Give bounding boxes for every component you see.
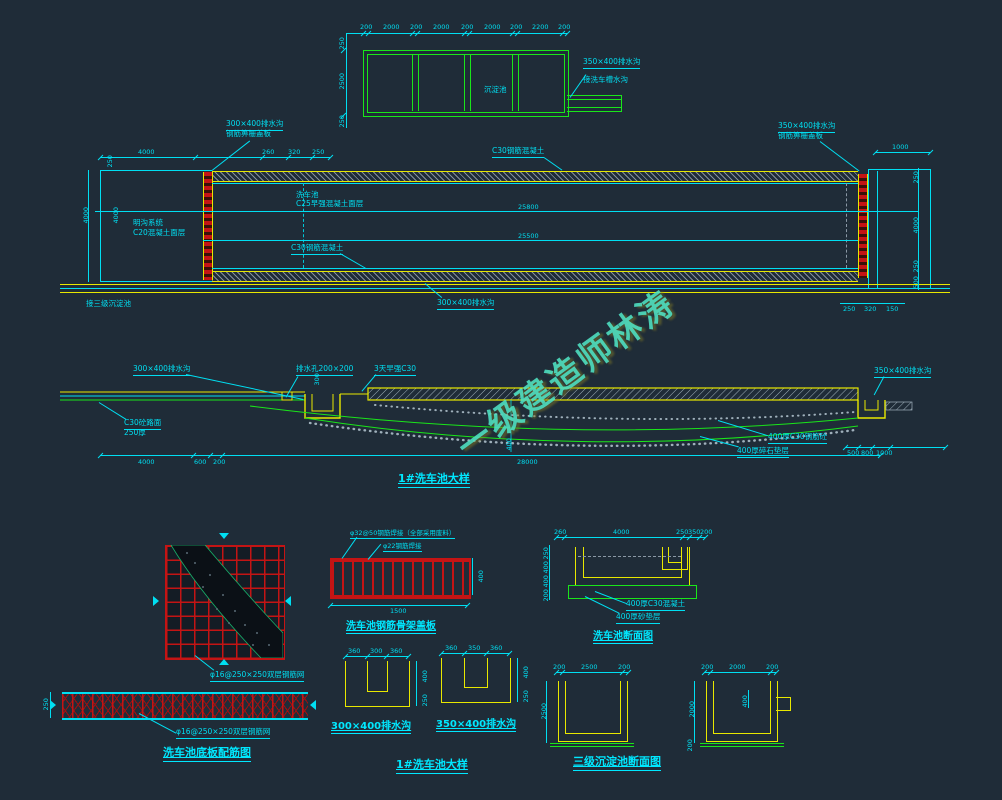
dim-label: 250 <box>43 698 50 710</box>
dim-line <box>345 656 408 657</box>
dim-label: 2000 <box>484 24 501 31</box>
dim-label: 300 <box>370 648 382 655</box>
pool-top-wall <box>212 171 858 182</box>
concrete-band <box>165 545 283 658</box>
dim-label: 400 <box>543 561 550 573</box>
dim-label: 28000 <box>517 459 538 466</box>
channel-outline <box>464 658 488 688</box>
connect-note: 接三级沉淀池 <box>86 300 131 309</box>
dim-label: 350 <box>468 645 480 652</box>
dim-label: 200 <box>510 24 522 31</box>
dim-label: 360 <box>390 648 402 655</box>
detail-title: 洗车池底板配筋图 <box>163 744 251 762</box>
dim-line <box>840 303 905 304</box>
leader-line <box>544 157 563 170</box>
outlet-line <box>567 107 622 108</box>
dim-label: 250 <box>543 547 550 559</box>
dim-line <box>95 211 918 212</box>
road-line <box>60 284 950 285</box>
dim-label: 4000 <box>83 207 90 224</box>
leader-line <box>340 253 366 269</box>
drain-note: 350×400排水沟 <box>583 58 640 69</box>
dim-line <box>845 447 945 448</box>
dim-label: 2000 <box>433 24 450 31</box>
section-arrow <box>285 596 291 606</box>
dim-line <box>875 152 930 153</box>
pool-inner-line <box>212 268 858 269</box>
dim-label: 4000 <box>113 207 120 224</box>
tank-divider <box>412 54 419 111</box>
rebar-mesh-strip <box>62 692 308 720</box>
drain-note: 300×400排水沟 <box>437 299 494 310</box>
dim-label: 4000 <box>913 217 920 234</box>
tank-outline <box>713 681 771 734</box>
dim-label: 2000 <box>383 24 400 31</box>
dim-label: 250 <box>913 171 920 183</box>
rebar-strip-right <box>858 174 868 278</box>
tick <box>928 150 934 156</box>
dim-label: 400 <box>478 570 485 582</box>
outlet-line <box>567 95 622 96</box>
dim-label: 4000 <box>138 459 155 466</box>
dim-label: 320 <box>288 149 300 156</box>
group-title: 1#洗车池大样 <box>396 756 468 774</box>
leader-line <box>212 141 250 171</box>
dim-label: 600 <box>194 459 206 466</box>
section-arrow <box>153 596 159 606</box>
dim-label: 260 <box>262 149 274 156</box>
dim-line <box>88 170 89 282</box>
strip-arrow <box>310 700 316 710</box>
channel-label: 350×400排水沟 <box>436 715 516 732</box>
tick <box>507 651 513 657</box>
rebar-strip-left <box>203 172 213 280</box>
connect-note: 接洗车槽水沟 <box>583 76 628 85</box>
dim-label: 250 <box>913 260 920 272</box>
cad-drawing-canvas: 沉淀池 200 2000 200 2000 200 2000 200 2200 … <box>0 0 1002 800</box>
dim-label: 250 <box>312 149 324 156</box>
dim-label: 350 <box>688 529 700 536</box>
dim-label: 250 <box>339 115 346 127</box>
dim-label: 25500 <box>518 233 539 240</box>
dim-label: 200 <box>700 529 712 536</box>
dim-label: 25800 <box>518 204 539 211</box>
dim-label: 1000 <box>876 450 893 457</box>
dim-line <box>346 33 567 34</box>
dim-label: 2200 <box>532 24 549 31</box>
dim-label: 4000 <box>138 149 155 156</box>
detail-title: 洗车池断面图 <box>593 627 653 644</box>
dim-line <box>517 658 518 702</box>
plan-line <box>100 170 212 171</box>
road-line <box>60 288 950 289</box>
dim-label: 1500 <box>390 608 407 615</box>
leader-line <box>820 141 860 171</box>
channel-label: 300×400排水沟 <box>331 717 411 734</box>
detail-title: 洗车池钢筋骨架盖板 <box>346 617 436 634</box>
base-note: 400厚C30混凝土 <box>626 600 685 611</box>
water-line <box>578 556 681 557</box>
dim-label: 250 <box>523 690 530 702</box>
apron-line <box>877 171 878 288</box>
dim-line <box>100 455 880 456</box>
cover-note: 钢筋箅栅盖板 <box>226 130 271 139</box>
dim-label: 260 <box>554 529 566 536</box>
dim-label: 200 <box>558 24 570 31</box>
dim-label: 4000 <box>613 529 630 536</box>
base-line <box>550 746 634 747</box>
dim-label: 500 <box>847 450 859 457</box>
dim-label: 200 <box>701 664 713 671</box>
cover-note: 钢筋箅栅盖板 <box>778 132 823 141</box>
dim-label: 2500 <box>541 703 548 720</box>
dim-line <box>556 672 628 673</box>
drain-note: 300×400排水沟 <box>133 365 190 376</box>
dim-label: 360 <box>348 648 360 655</box>
dim-label: 200 <box>543 589 550 601</box>
dim-label: 2500 <box>581 664 598 671</box>
dim-label: 200 <box>213 459 225 466</box>
dim-label: 500 <box>913 276 920 288</box>
base-line <box>700 743 784 744</box>
dim-label: 200 <box>461 24 473 31</box>
dim-label: 2500 <box>339 73 346 90</box>
dim-label: 2000 <box>689 701 696 718</box>
dim-label: 320 <box>864 306 876 313</box>
dim-line <box>416 661 417 706</box>
apron-line <box>868 169 869 289</box>
pool-note: C25早强混凝土面层 <box>296 200 363 209</box>
tank-divider <box>464 54 471 111</box>
dim-label: 250 <box>107 155 114 167</box>
tick <box>565 31 571 37</box>
skeleton-grid <box>330 558 471 599</box>
dim-label: 200 <box>360 24 372 31</box>
dim-label: 150 <box>886 306 898 313</box>
dim-line <box>203 240 858 241</box>
dim-label: 400 <box>543 575 550 587</box>
dim-line <box>50 692 51 718</box>
pool-inner-line <box>212 183 858 184</box>
tank-label: 沉淀池 <box>484 86 507 95</box>
outlet-end <box>621 95 622 112</box>
apron-line <box>868 169 930 170</box>
concrete-note: C30钢筋混凝土 <box>291 244 343 255</box>
dim-label: 1000 <box>892 144 909 151</box>
drain-hole-note: 排水孔200×200 <box>296 365 353 376</box>
gutter-note: C20混凝土面层 <box>133 229 185 238</box>
dim-label: 400 <box>523 666 530 678</box>
tank-divider <box>512 54 519 111</box>
section-arrow <box>219 533 229 539</box>
pool-lip-channel <box>668 547 682 563</box>
dim-label: 250 <box>843 306 855 313</box>
base-note: 400厚砂垫层 <box>616 613 660 624</box>
dim-line <box>472 558 473 595</box>
dim-label: 360 <box>445 645 457 652</box>
dim-label: 400 <box>742 695 749 707</box>
road-line <box>60 292 950 293</box>
outlet-line <box>567 111 622 112</box>
leader-line <box>342 537 358 559</box>
mesh-note: φ16@250×250双层钢筋网 <box>176 728 270 739</box>
dim-line <box>100 157 330 158</box>
road-note: 250厚 <box>124 429 146 438</box>
dim-label: 250 <box>676 529 688 536</box>
dim-label: 250 <box>422 694 429 706</box>
dim-label: 2000 <box>729 664 746 671</box>
group-title: 三级沉淀池断面图 <box>573 753 661 771</box>
dim-label: 200 <box>553 664 565 671</box>
dim-label: 360 <box>490 645 502 652</box>
tick <box>465 603 471 609</box>
outlet-line <box>567 99 622 100</box>
tick <box>328 155 334 161</box>
skeleton-note: φ32@50钢筋焊接（全部采用废料） <box>350 530 455 539</box>
skeleton-note: φ22钢筋焊接 <box>383 543 422 552</box>
base-note: 400厚碎石垫层 <box>737 447 789 458</box>
dim-label: 800 <box>861 450 873 457</box>
section-arrow <box>219 659 229 665</box>
dim-label: 250 <box>339 37 346 49</box>
plan-line <box>100 281 212 282</box>
tick <box>406 654 412 660</box>
joint-dashed-line <box>846 183 847 268</box>
dim-line <box>441 653 509 654</box>
base-line <box>700 746 784 747</box>
section-title: 1#洗车池大样 <box>398 470 470 488</box>
dim-line <box>330 605 467 606</box>
base-line <box>550 743 634 744</box>
dim-label: 200 <box>687 739 694 751</box>
concrete-note: C30钢筋混凝土 <box>492 147 544 158</box>
gutter-note: 明沟系统 <box>133 219 163 228</box>
mesh-note: φ16@250×250双层钢筋网 <box>210 671 304 682</box>
dim-line <box>704 672 776 673</box>
dim-label: 200 <box>618 664 630 671</box>
dim-label: 400 <box>422 670 429 682</box>
pool-bottom-wall <box>212 271 858 282</box>
plan-line <box>100 170 101 282</box>
channel-outline <box>367 661 388 692</box>
dim-label: 200 <box>410 24 422 31</box>
apron-line <box>930 169 931 289</box>
slope-note: 3天早强C30 <box>374 365 416 376</box>
dim-label: 200 <box>766 664 778 671</box>
leader-line <box>425 283 442 298</box>
tank-outline <box>565 681 621 734</box>
inlet-notch <box>776 697 791 711</box>
base-note: 400厚C30钢筋砼 <box>768 433 827 444</box>
